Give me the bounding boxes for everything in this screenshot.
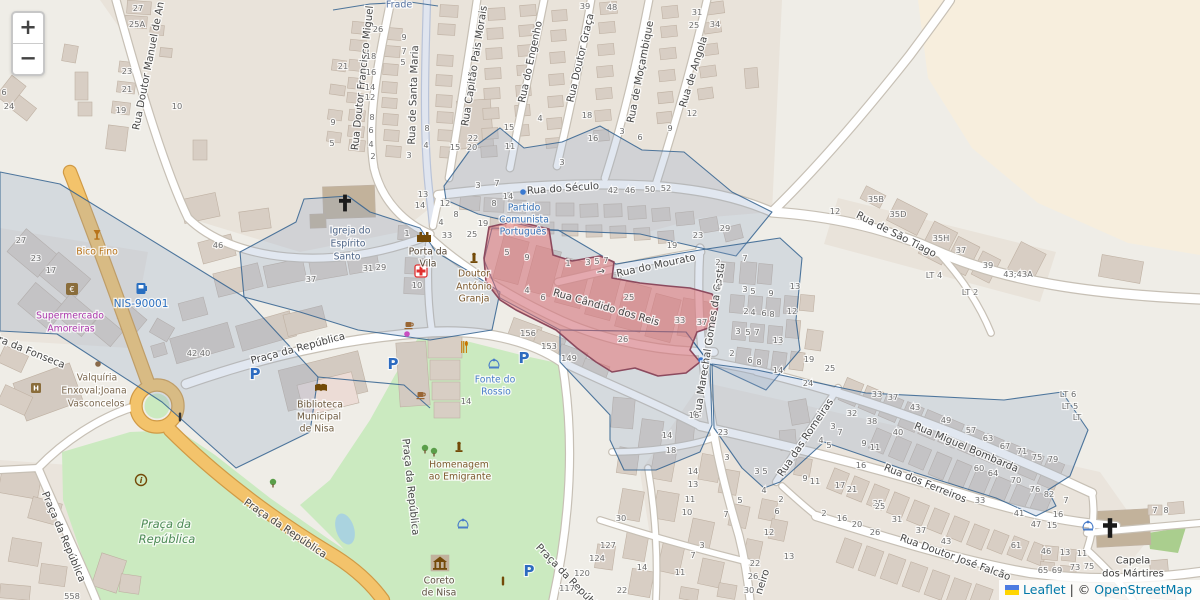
house-number: 4 (750, 307, 755, 317)
building (548, 95, 564, 107)
building (547, 117, 563, 129)
leaflet-attribution-link[interactable]: Leaflet (1023, 582, 1066, 597)
house-number: 8 (453, 209, 458, 219)
house-number: 79 (1048, 454, 1059, 464)
house-number: 6 (1, 87, 6, 97)
house-number: 6 (368, 125, 373, 135)
house-number: 25 (875, 501, 886, 511)
building (487, 28, 504, 40)
parking-icon: P (519, 349, 530, 367)
house-number: 40 (893, 427, 904, 437)
house-number: 5 (594, 256, 599, 266)
house-number: 35D (890, 209, 907, 219)
house-number: 11 (675, 567, 686, 577)
house-number: 16 (689, 410, 700, 420)
house-number: 43;43A (1003, 269, 1033, 279)
building (485, 68, 502, 80)
poi-label: de Nisa (422, 588, 457, 599)
house-number: 4 (368, 139, 373, 149)
house-number: 27 (133, 3, 144, 13)
house-number: 37 (697, 317, 708, 327)
building (436, 95, 453, 108)
house-number: 3 (699, 540, 704, 550)
poi-label: Vasconcelos (68, 399, 125, 410)
house-number: LT 6 (1060, 389, 1076, 399)
house-number: 7 (837, 427, 842, 437)
house-number: 29 (720, 223, 731, 233)
house-number: 12 (764, 527, 775, 537)
house-number: 10 (412, 280, 423, 290)
house-number: 156 (520, 328, 536, 338)
house-number: 27 (16, 235, 27, 245)
house-number: 18 (582, 110, 593, 120)
poi-label: Biblioteca (297, 400, 343, 411)
parking-icon: P (524, 562, 535, 580)
house-number: 46 (625, 185, 636, 195)
ukraine-flag-icon (1005, 585, 1019, 595)
poi-label: Supermercado (36, 311, 104, 322)
building (106, 125, 129, 151)
house-number: 64 (988, 468, 999, 478)
building (744, 67, 759, 88)
poi-label: ao Emigrante (429, 472, 492, 483)
building (430, 360, 460, 380)
house-number: 52 (661, 183, 672, 193)
house-number: 38 (867, 416, 878, 426)
building (0, 584, 31, 600)
poi-label: Valquíria (77, 373, 117, 384)
house-number: 4 (537, 113, 542, 123)
house-number: 30 (744, 585, 755, 595)
poi-label: Coreto (424, 576, 455, 587)
house-number: 42 (187, 348, 198, 358)
house-number: 14 (662, 430, 673, 440)
poi-label: Amoreiras (47, 324, 95, 335)
building (595, 109, 612, 121)
house-number: 8 (1163, 505, 1168, 515)
house-number: 30 (616, 513, 627, 523)
building (39, 563, 68, 586)
building (432, 382, 460, 400)
house-number: 25 (825, 363, 836, 373)
building (483, 108, 500, 120)
house-number: 5 (504, 247, 509, 257)
poi-label: Enxoval;Joana (61, 386, 126, 397)
house-number: LT (1073, 412, 1082, 422)
park-label: República (139, 532, 196, 546)
building (160, 47, 173, 57)
zoom-out-button[interactable]: − (13, 43, 43, 74)
poi-label: Homenagem (429, 460, 489, 471)
building (661, 5, 678, 19)
house-number: 35B (868, 194, 885, 204)
house-number: 47 (1031, 519, 1042, 529)
zoom-in-button[interactable]: + (13, 13, 43, 43)
house-number: 3 (754, 466, 759, 476)
building (596, 87, 613, 99)
cafe-icon (405, 322, 414, 329)
cafe-icon (417, 392, 426, 399)
house-number: 33 (975, 495, 986, 505)
house-number: 3 (559, 157, 564, 167)
house-number: 37 (916, 525, 927, 535)
house-number: 5 (329, 138, 334, 148)
house-number: 31 (692, 7, 703, 17)
building (552, 9, 568, 21)
house-number: 2 (743, 306, 748, 316)
house-number: 33 (872, 389, 883, 399)
building (659, 47, 676, 60)
house-number: 16 (366, 67, 377, 77)
building (799, 294, 814, 311)
house-number: 25 (689, 20, 700, 30)
park-label: Praça da (141, 517, 191, 531)
house-number: 37 (888, 392, 899, 402)
building (386, 145, 402, 157)
house-number: 46 (213, 240, 224, 250)
house-number: 120 (574, 568, 590, 578)
house-number: 3 (742, 284, 747, 294)
poi-label: Municipal (297, 412, 341, 423)
house-number: 7 (494, 178, 499, 188)
house-number: 21 (338, 61, 349, 71)
building (438, 24, 456, 36)
poi-label: Português (500, 227, 547, 238)
house-number: 7 (742, 253, 747, 263)
building (599, 21, 616, 33)
house-number: 48 (607, 2, 618, 12)
house-number: 14 (773, 365, 784, 375)
dot-icon (95, 361, 101, 367)
house-number: 39 (983, 260, 994, 270)
house-number: 3 (585, 257, 590, 267)
house-number: 63 (983, 433, 994, 443)
road (0, 468, 38, 470)
building (382, 97, 398, 108)
building (119, 574, 141, 595)
house-number: 43 (910, 402, 921, 412)
post-icon (179, 413, 181, 422)
house-number: 2 (778, 494, 783, 504)
building (329, 84, 345, 96)
house-number: 3 (830, 421, 835, 431)
house-number: 14 (688, 466, 699, 476)
house-number: 3 (724, 452, 729, 462)
house-number: 11 (1077, 548, 1088, 558)
house-number: 67 (1000, 441, 1011, 451)
leaflet-map-container[interactable]: €HiRua Doutor Manuel de AnRua Doutor Fra… (0, 0, 1200, 600)
building (597, 65, 614, 77)
building (551, 29, 567, 41)
attribution-separator: | © (1066, 582, 1095, 597)
house-number: 10 (682, 507, 693, 517)
house-number: 26 (870, 527, 881, 537)
building (660, 25, 677, 38)
house-number: 7 (603, 255, 608, 265)
house-number: 9 (330, 117, 335, 127)
house-number: 46 (1041, 546, 1052, 556)
house-number: 26 (748, 571, 759, 581)
house-number: 4 (715, 282, 720, 292)
house-number: 22 (750, 558, 761, 568)
map-canvas[interactable]: €HiRua Doutor Manuel de AnRua Doutor Fra… (0, 0, 1200, 600)
building (488, 8, 506, 21)
house-number: 6 (540, 292, 545, 302)
house-number: 15 (1047, 520, 1058, 530)
building (437, 112, 454, 124)
house-number: 13 (418, 189, 429, 199)
house-number: 11 (505, 141, 516, 151)
poi-label: Espírito (331, 239, 366, 250)
svg-text:H: H (33, 385, 39, 393)
zoom-control: + − (11, 11, 45, 76)
building (436, 75, 453, 87)
house-number: 558 (64, 591, 80, 600)
building (382, 81, 398, 93)
building (549, 73, 565, 85)
poi-label: Igreja do (330, 226, 371, 237)
house-number: 34 (710, 19, 721, 29)
house-number: 19 (478, 218, 489, 228)
building (440, 5, 459, 18)
house-number: 14 (461, 396, 472, 406)
parking-icon: P (250, 365, 261, 383)
building (383, 63, 399, 75)
building (434, 402, 460, 418)
house-number: 20 (467, 142, 478, 152)
house-number: 9 (524, 252, 529, 262)
building (598, 43, 615, 55)
house-number: 14 (365, 82, 376, 92)
poi-label: Rossio (481, 387, 511, 398)
house-number: 6 (747, 355, 752, 365)
house-number: 15 (504, 122, 515, 132)
house-number: 41 (1014, 508, 1025, 518)
house-number: 9 (401, 32, 406, 42)
house-number: 65 (1038, 565, 1049, 575)
house-number: 9 (802, 473, 807, 483)
house-number: 17 (46, 265, 57, 275)
building (656, 111, 672, 124)
poi-label: Comunista (499, 215, 549, 226)
poi-label: Partido (508, 203, 541, 214)
house-number: 4 (423, 140, 428, 150)
building (699, 65, 716, 78)
building (805, 329, 824, 351)
house-number: 9 (768, 288, 773, 298)
charge-icon (137, 283, 148, 294)
house-number: 16 (837, 513, 848, 523)
house-number: 82 (1044, 489, 1055, 499)
house-number: 5 (745, 327, 750, 337)
building (78, 102, 92, 116)
poi-label: Fonte do (475, 375, 516, 386)
poi-label: de Nisa (300, 424, 335, 435)
house-number: 124 (589, 553, 605, 563)
house-number: 7 (401, 46, 406, 56)
house-number: 7 (723, 509, 728, 519)
house-number: 3 (406, 150, 411, 160)
poi-label: Porta da (409, 247, 448, 258)
house-number: 5 (400, 57, 405, 67)
house-number: 7 (1152, 505, 1157, 515)
house-number: 75 (1032, 452, 1043, 462)
house-number: 6 (761, 308, 766, 318)
building (657, 91, 673, 104)
poi-label: Granja (459, 294, 490, 305)
building (697, 87, 713, 100)
building (550, 51, 566, 63)
poi-label: Santo (334, 252, 361, 263)
house-number: 33 (675, 315, 686, 325)
house-number: 26 (618, 334, 629, 344)
poi-label: Bico Fino (76, 247, 118, 258)
house-number: 16 (1053, 509, 1064, 519)
house-number: 11 (810, 476, 821, 486)
house-number: 11 (685, 494, 696, 504)
parking-icon: P (388, 355, 399, 373)
house-number: LT 4 (926, 270, 942, 280)
house-number: 29 (376, 262, 387, 272)
house-number: 23 (31, 253, 42, 263)
house-number: 9 (667, 123, 672, 133)
building (717, 583, 737, 600)
dot-icon (404, 331, 410, 337)
building (628, 568, 654, 597)
house-number: 57 (966, 425, 977, 435)
house-number: 7 (1063, 495, 1068, 505)
house-number: 5 (762, 466, 767, 476)
house-number: 43 (941, 536, 952, 546)
building (75, 72, 88, 100)
house-number: 14 (637, 562, 648, 572)
svg-text:i: i (140, 476, 143, 485)
house-number: 13 (688, 479, 699, 489)
house-number: 1 (565, 258, 570, 268)
house-number: 6 (637, 132, 642, 142)
poi-label: Vila (419, 259, 436, 270)
house-number: 13 (1060, 547, 1071, 557)
house-number: 3 (619, 126, 624, 136)
house-number: 16 (856, 460, 867, 470)
house-number: 23 (718, 427, 729, 437)
attribution-bar: Leaflet | © OpenStreetMap (999, 580, 1200, 600)
house-number: 4 (524, 285, 529, 295)
poi-label: Doutor (458, 269, 490, 280)
house-number: 18 (666, 445, 677, 455)
house-number: 4 (818, 435, 823, 445)
house-number: 61 (1011, 540, 1022, 550)
house-number: 60 (974, 463, 985, 473)
house-number: 37 (306, 274, 317, 284)
house-number: LT 5 (1062, 401, 1078, 411)
house-number: 70 (1011, 475, 1022, 485)
book-icon (315, 384, 327, 391)
house-number: 31 (892, 514, 903, 524)
house-number: 15 (450, 142, 461, 152)
house-number: 3 (735, 326, 740, 336)
house-number: 18 (366, 51, 377, 61)
house-number: 25A (129, 19, 146, 29)
house-number: 35H (933, 233, 950, 243)
house-number: 13 (784, 551, 795, 561)
house-number: 75 (1084, 561, 1095, 571)
house-number: 20 (852, 519, 863, 529)
house-number: 153 (541, 341, 557, 351)
house-number: 25 (467, 229, 478, 239)
house-number: 22 (617, 585, 628, 595)
hotel-icon: H (31, 383, 41, 393)
poi-label: Capela (1116, 556, 1151, 567)
house-number: 37 (956, 245, 967, 255)
building (383, 113, 399, 125)
building (384, 129, 400, 141)
house-number: 8 (769, 309, 774, 319)
house-number: 3 (475, 180, 480, 190)
house-number: 149 (561, 353, 577, 363)
house-number: 2 (729, 348, 734, 358)
house-number: 12 (440, 198, 451, 208)
poi-label: António (456, 282, 492, 293)
house-number: 12 (365, 92, 376, 102)
house-number: 49 (941, 415, 952, 425)
building (396, 341, 430, 407)
osm-attribution-link[interactable]: OpenStreetMap (1094, 582, 1192, 597)
house-number: LT 2 (962, 287, 978, 297)
building (193, 140, 207, 160)
house-number: 33 (442, 230, 453, 240)
house-number: 13 (773, 335, 784, 345)
house-number: 1 (404, 228, 409, 238)
building (486, 48, 503, 60)
house-number: 11 (870, 442, 881, 452)
house-number: 69 (1052, 565, 1063, 575)
dot-icon (520, 189, 526, 195)
house-number: 14 (503, 191, 514, 201)
house-number: 7 (690, 550, 695, 560)
poi-label: NIS-90001 (114, 298, 169, 310)
house-number: 127 (600, 540, 616, 550)
house-number: 24 (803, 378, 814, 388)
house-number: 26 (373, 24, 384, 34)
house-number: 19 (667, 240, 678, 250)
house-number: 24 (4, 101, 15, 111)
house-number: 5 (826, 440, 831, 450)
house-number: 8 (424, 123, 429, 133)
poi-label: dos Mártires (1102, 568, 1164, 580)
house-number: 12 (830, 206, 841, 216)
house-number: 2 (821, 508, 826, 518)
house-number: 40 (200, 348, 211, 358)
building (520, 4, 537, 16)
bank-icon: € (66, 283, 78, 295)
building (437, 55, 454, 67)
house-number: 17 (835, 480, 846, 490)
building (658, 69, 675, 82)
house-number: 117 (559, 583, 575, 593)
house-number: 39 (580, 1, 591, 11)
house-number: 21 (847, 484, 858, 494)
house-number: 14 (415, 200, 426, 210)
house-number: 8 (756, 357, 761, 367)
house-number: 5 (750, 286, 755, 296)
building (239, 208, 271, 232)
building (8, 538, 42, 567)
house-number: 25 (624, 292, 635, 302)
post-icon (502, 577, 504, 586)
house-number: 8 (491, 198, 496, 208)
house-number: 73 (1070, 562, 1081, 572)
